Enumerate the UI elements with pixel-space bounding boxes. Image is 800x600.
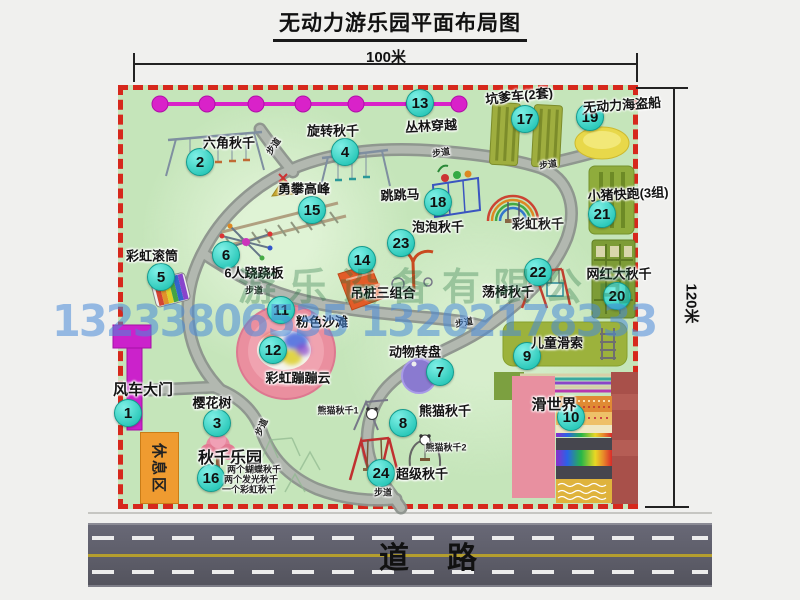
rest-area-label: 休息区: [149, 442, 170, 493]
dim-tick-right-bottom: [645, 506, 689, 508]
dim-tick-top-left: [133, 53, 135, 82]
sidewalk-edge: [88, 512, 712, 514]
dim-line-right: [673, 88, 675, 508]
page-title: 无动力游乐园平面布局图: [273, 7, 527, 42]
park-area: [118, 85, 638, 509]
dim-label-width: 100米: [366, 46, 406, 67]
dim-label-height: 120米: [682, 283, 703, 323]
dim-tick-top-right: [636, 53, 638, 82]
rest-area-sign: 休息区: [140, 432, 179, 504]
road: 道 路: [88, 523, 712, 587]
screenshot-root: 无动力游乐园平面布局图 100米 120米: [0, 0, 800, 600]
dim-tick-right-top: [636, 87, 688, 89]
road-label: 道 路: [379, 533, 481, 577]
